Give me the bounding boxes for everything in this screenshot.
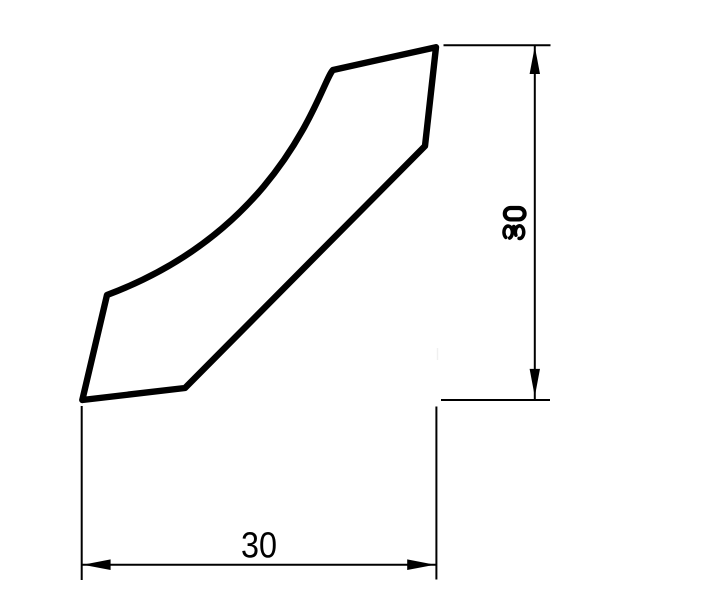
svg-text:30: 30 xyxy=(241,525,277,566)
